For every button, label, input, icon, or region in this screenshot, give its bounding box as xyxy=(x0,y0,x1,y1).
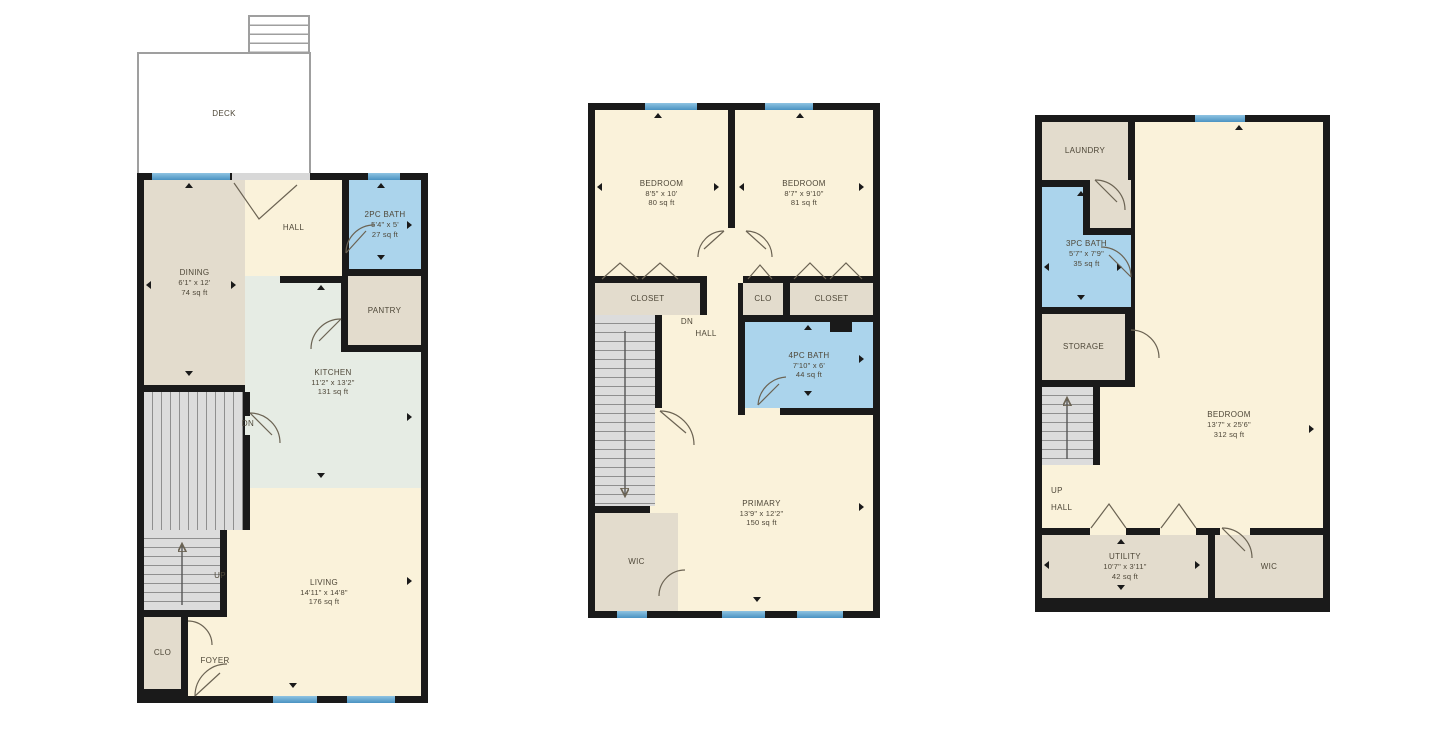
dimension-arrow xyxy=(654,113,662,118)
window xyxy=(152,173,230,180)
dimension-arrow xyxy=(317,473,325,478)
bedroom-extension xyxy=(1100,387,1135,528)
foyer-text: FOYER xyxy=(200,656,229,666)
wall-segment xyxy=(243,392,250,416)
room-label: CLO xyxy=(743,283,783,315)
dimension-arrow xyxy=(407,221,412,229)
dimension-arrow xyxy=(407,577,412,585)
wic-label: WIC xyxy=(1261,562,1277,572)
utility-dims: 10'7" x 3'11" xyxy=(1103,562,1146,572)
dining-label: DINING xyxy=(180,268,210,278)
closet-label: CLOSET xyxy=(631,294,665,304)
dimension-arrow xyxy=(1117,539,1125,544)
dimension-arrow xyxy=(597,183,602,191)
window xyxy=(617,611,647,618)
dimension-arrow xyxy=(185,183,193,188)
bedroom-dims: 8'5" x 10' xyxy=(645,189,677,199)
room-label: BEDROOM 8'7" x 9'10" 81 sq ft xyxy=(735,110,873,276)
room-label: HALL xyxy=(245,180,342,276)
dimension-arrow xyxy=(714,183,719,191)
kitchen-area: 131 sq ft xyxy=(318,387,349,397)
window xyxy=(273,696,317,703)
window xyxy=(1195,115,1245,122)
bedroom-dims: 13'7" x 25'6" xyxy=(1207,420,1251,430)
room-hall: HALL xyxy=(245,180,342,276)
bedroom-label: BEDROOM xyxy=(1207,410,1250,420)
bedroom-label: BEDROOM xyxy=(640,179,683,189)
dimension-arrow xyxy=(859,503,864,511)
wall-segment xyxy=(1093,387,1100,465)
dimension-arrow xyxy=(146,281,151,289)
dimension-arrow xyxy=(185,371,193,376)
doorway-opening xyxy=(1160,528,1196,535)
room-label: CLOSET xyxy=(790,283,873,315)
primary-dims: 13'9" x 12'2" xyxy=(740,509,784,519)
dimension-arrow xyxy=(1195,561,1200,569)
closet-label: CLO xyxy=(154,648,171,658)
laundry-label: LAUNDRY xyxy=(1065,146,1105,156)
bath-dims: 7'10" x 6' xyxy=(793,361,825,371)
wall-segment xyxy=(243,435,250,530)
room-wic: WIC xyxy=(1215,535,1323,598)
dimension-arrow xyxy=(1077,191,1085,196)
room-primary: PRIMARY 13'9" x 12'2" 150 sq ft xyxy=(650,415,873,611)
living-area: 176 sq ft xyxy=(309,597,340,607)
bedroom-label-block: BEDROOM 13'7" x 25'6" 312 sq ft xyxy=(1135,410,1323,439)
stairs-dn-label: DN xyxy=(672,317,702,327)
bath-area: 27 sq ft xyxy=(372,230,398,240)
stairs-down xyxy=(144,392,243,530)
living-dims: 14'11" x 14'8" xyxy=(300,588,348,598)
wall-notch xyxy=(1083,180,1131,235)
stairs-up xyxy=(1042,387,1093,465)
dimension-arrow xyxy=(289,683,297,688)
bath-label: 4PC BATH xyxy=(789,351,830,361)
storage-label: STORAGE xyxy=(1063,342,1104,352)
window xyxy=(368,173,400,180)
room-deck: DECK xyxy=(137,52,311,175)
doorway-opening xyxy=(707,276,743,283)
room-clo: CLO xyxy=(743,283,783,315)
dining-dims: 6'1" x 12' xyxy=(178,278,210,288)
dimension-arrow xyxy=(317,285,325,290)
kitchen-label: KITCHEN xyxy=(314,368,351,378)
room-bedroom-left: BEDROOM 8'5" x 10' 80 sq ft xyxy=(595,110,728,276)
stairs-up-label: UP xyxy=(1051,486,1091,496)
doorway-opening xyxy=(724,228,746,276)
bedroom-label: BEDROOM xyxy=(782,179,825,189)
dn-text: DN xyxy=(242,419,254,429)
window xyxy=(765,103,813,110)
foyer-label: FOYER xyxy=(179,656,251,666)
hall-text: HALL xyxy=(1051,503,1072,513)
dimension-arrow xyxy=(231,281,236,289)
room-laundry: LAUNDRY xyxy=(1042,122,1128,180)
room-dining: DINING 6'1" x 12' 74 sq ft xyxy=(144,180,245,385)
room-pantry: PANTRY xyxy=(341,276,421,352)
wic-label: WIC xyxy=(628,557,644,567)
primary-area: 150 sq ft xyxy=(746,518,777,528)
bath-dims: 5'4" x 5' xyxy=(371,220,399,230)
wall-segment xyxy=(830,322,852,332)
dimension-arrow xyxy=(859,355,864,363)
stairs-down xyxy=(595,315,655,506)
room-label: PANTRY xyxy=(348,276,421,345)
floor-2-plan: BEDROOM 8'5" x 10' 80 sq ft BEDROOM 8'7"… xyxy=(588,103,880,618)
bedroom-area: 312 sq ft xyxy=(1214,430,1245,440)
dimension-arrow xyxy=(859,183,864,191)
hall-passage xyxy=(707,283,738,315)
dimension-arrow xyxy=(804,325,812,330)
dimension-arrow xyxy=(739,183,744,191)
bedroom-area: 81 sq ft xyxy=(791,198,817,208)
room-label: BEDROOM 8'5" x 10' 80 sq ft xyxy=(595,110,728,276)
dimension-arrow xyxy=(407,413,412,421)
room-closet: CLO xyxy=(144,617,181,689)
closet-label: CLOSET xyxy=(815,294,849,304)
room-label: DINING 6'1" x 12' 74 sq ft xyxy=(144,180,245,385)
stairs-dn-label: DN xyxy=(233,419,263,429)
floorplan-image: DECK DINING 6'1" x 12' 74 sq ft HALL 2PC… xyxy=(0,0,1440,744)
bedroom-dims: 8'7" x 9'10" xyxy=(784,189,823,199)
room-label: DECK xyxy=(139,54,309,173)
utility-area: 42 sq ft xyxy=(1112,572,1138,582)
room-storage: STORAGE xyxy=(1042,314,1125,380)
stairs-up-label: UP xyxy=(203,571,237,581)
dimension-arrow xyxy=(377,183,385,188)
wall-segment xyxy=(144,610,225,617)
room-hall xyxy=(1042,465,1100,528)
window xyxy=(645,103,697,110)
dimension-arrow xyxy=(796,113,804,118)
deck-steps xyxy=(248,15,310,54)
bath-label: 2PC BATH xyxy=(365,210,406,220)
primary-label: PRIMARY xyxy=(742,499,780,509)
clo-label: CLO xyxy=(754,294,771,304)
room-bedroom xyxy=(1135,122,1323,528)
room-closet-left: CLOSET xyxy=(595,283,700,315)
dimension-arrow xyxy=(1235,125,1243,130)
doorway-opening xyxy=(655,408,700,415)
room-label: LAUNDRY xyxy=(1042,122,1128,180)
pantry-label: PANTRY xyxy=(368,306,402,316)
kitchen-dims: 11'2" x 13'2" xyxy=(311,378,354,388)
room-label: CLO xyxy=(144,617,181,689)
doorway-opening xyxy=(745,408,780,415)
room-label: UTILITY 10'7" x 3'11" 42 sq ft xyxy=(1042,535,1208,598)
floor-1-plan: DINING 6'1" x 12' 74 sq ft HALL 2PC BATH… xyxy=(137,173,428,703)
bath-label: 3PC BATH xyxy=(1066,239,1107,249)
deck-label: DECK xyxy=(212,109,235,119)
dimension-arrow xyxy=(804,391,812,396)
dimension-arrow xyxy=(1117,585,1125,590)
room-wic: WIC xyxy=(595,513,678,611)
room-label: STORAGE xyxy=(1042,314,1125,380)
dining-area: 74 sq ft xyxy=(181,288,207,298)
room-closet-right: CLOSET xyxy=(790,283,873,315)
sliding-door xyxy=(232,173,310,180)
room-label: LIVING 14'11" x 14'8" 176 sq ft xyxy=(227,488,421,696)
utility-label: UTILITY xyxy=(1109,552,1141,562)
bath-dims: 5'7" x 7'9" xyxy=(1069,249,1104,259)
dimension-arrow xyxy=(1077,295,1085,300)
window xyxy=(347,696,395,703)
room-label: CLOSET xyxy=(595,283,700,315)
hall-label: HALL xyxy=(1051,503,1101,513)
window xyxy=(722,611,765,618)
wall-segment xyxy=(181,617,188,689)
room-label: WIC xyxy=(595,513,678,611)
room-living: LIVING 14'11" x 14'8" 176 sq ft xyxy=(227,488,421,696)
up-text: UP xyxy=(214,571,226,581)
hall-text: HALL xyxy=(695,329,716,339)
room-label: WIC xyxy=(1215,535,1323,598)
living-label: LIVING xyxy=(310,578,338,588)
doorway-opening xyxy=(1220,528,1250,535)
bedroom-area: 80 sq ft xyxy=(648,198,674,208)
doorway-opening xyxy=(1090,528,1126,535)
wall-segment xyxy=(280,276,341,283)
up-text: UP xyxy=(1051,486,1063,496)
room-bedroom-right: BEDROOM 8'7" x 9'10" 81 sq ft xyxy=(735,110,873,276)
room-utility: UTILITY 10'7" x 3'11" 42 sq ft xyxy=(1042,535,1208,598)
bath-area: 44 sq ft xyxy=(796,370,822,380)
room-label: PRIMARY 13'9" x 12'2" 150 sq ft xyxy=(650,415,873,611)
dimension-arrow xyxy=(377,255,385,260)
dimension-arrow xyxy=(1044,561,1049,569)
floor-3-plan: LAUNDRY 3PC BATH 5'7" x 7'9" 35 sq ft ST… xyxy=(1035,115,1330,612)
dimension-arrow xyxy=(753,597,761,602)
hall-label: HALL xyxy=(283,223,304,233)
hall-label: HALL xyxy=(684,329,728,339)
bath-label-block: 3PC BATH 5'7" x 7'9" 35 sq ft xyxy=(1042,239,1131,268)
window xyxy=(797,611,843,618)
bath-area: 35 sq ft xyxy=(1073,259,1099,269)
dn-text: DN xyxy=(681,317,693,327)
